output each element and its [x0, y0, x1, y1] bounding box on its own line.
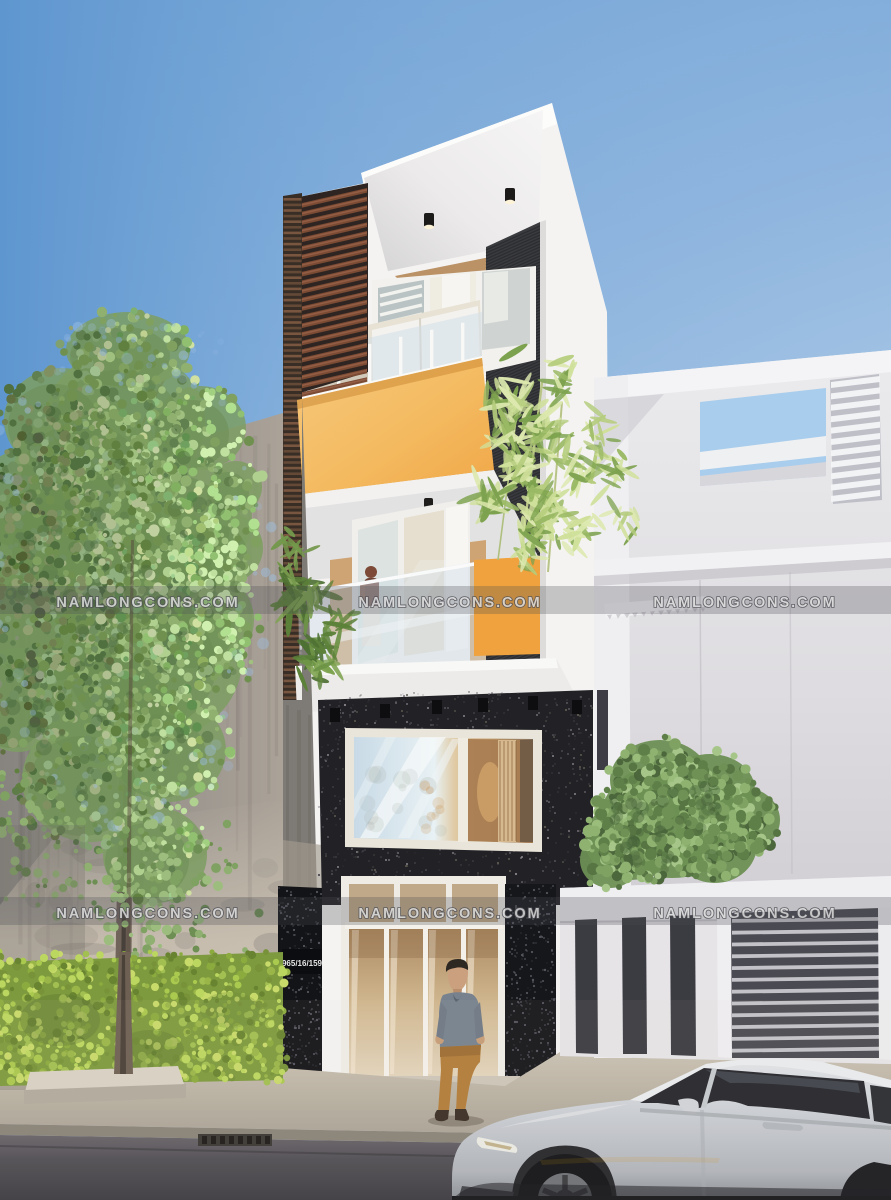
svg-text:965/16/159: 965/16/159	[282, 959, 323, 968]
